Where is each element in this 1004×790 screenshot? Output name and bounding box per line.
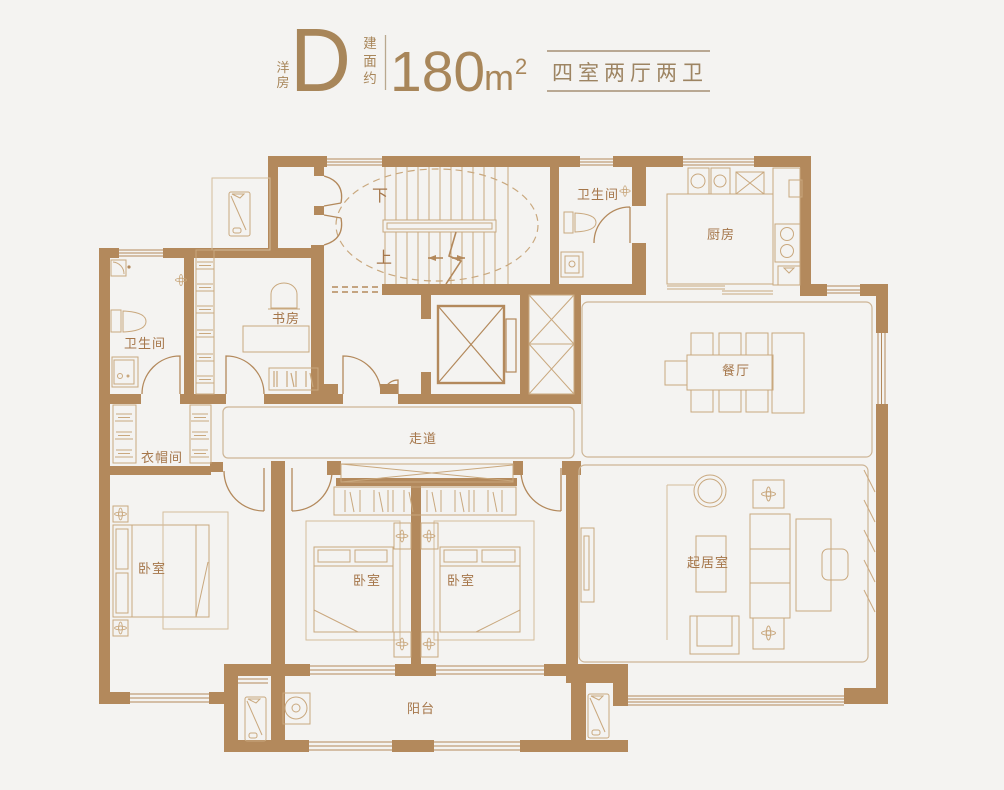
svg-text:卧室: 卧室 (138, 561, 166, 576)
svg-text:建: 建 (363, 36, 377, 51)
svg-text:m: m (484, 57, 514, 98)
svg-text:卧室: 卧室 (353, 573, 381, 588)
svg-text:卧室: 卧室 (447, 573, 475, 588)
svg-text:阳台: 阳台 (407, 701, 435, 716)
svg-text:D: D (290, 11, 351, 111)
svg-text:餐厅: 餐厅 (722, 363, 750, 378)
svg-text:约: 约 (363, 71, 377, 86)
svg-text:走道: 走道 (409, 431, 437, 446)
svg-text:180: 180 (390, 40, 485, 104)
svg-text:下: 下 (372, 188, 388, 205)
svg-text:卫生间: 卫生间 (577, 187, 619, 202)
svg-text:四室两厅两卫: 四室两厅两卫 (552, 62, 708, 85)
svg-text:2: 2 (515, 54, 527, 79)
svg-text:房: 房 (276, 75, 289, 90)
svg-text:书房: 书房 (272, 311, 300, 326)
svg-text:厨房: 厨房 (707, 227, 735, 242)
svg-text:面: 面 (363, 54, 377, 69)
svg-text:卫生间: 卫生间 (124, 336, 166, 351)
svg-text:洋: 洋 (276, 60, 289, 75)
svg-text:上: 上 (376, 249, 392, 267)
svg-text:起居室: 起居室 (687, 555, 729, 570)
svg-text:衣帽间: 衣帽间 (141, 450, 183, 465)
